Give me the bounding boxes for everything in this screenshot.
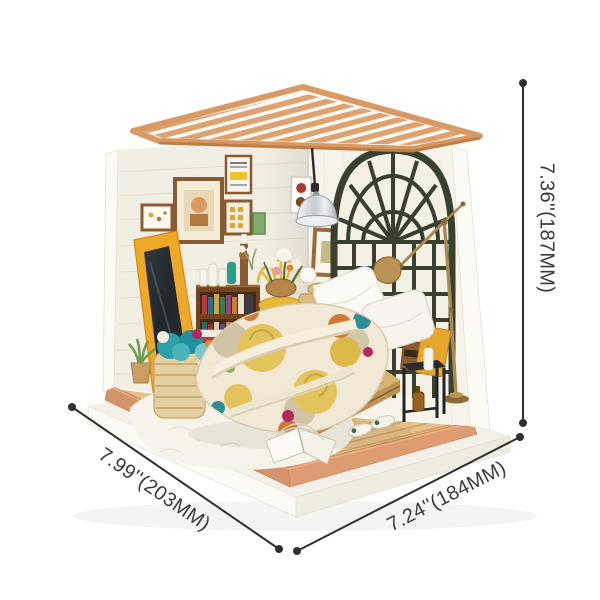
dollhouse-illustration [0,0,600,600]
dimension-label-height: 7.36''(187MM) [535,163,558,293]
picture-frame-flowers [142,205,172,230]
nightstand-candle [424,345,433,370]
product-dimension-diagram: 7.99''(203MM) 7.24''(184MM) 7.36''(187MM… [0,0,600,600]
picture-card-green [253,213,265,234]
picture-frame-portrait [175,179,222,242]
picture-frame-stamps [225,201,251,234]
teapot [300,267,316,283]
floor-lamp-shade [374,257,401,283]
teal-vase [227,262,236,284]
picture-frame-poster [226,156,251,193]
dimension-line-height [519,79,527,427]
